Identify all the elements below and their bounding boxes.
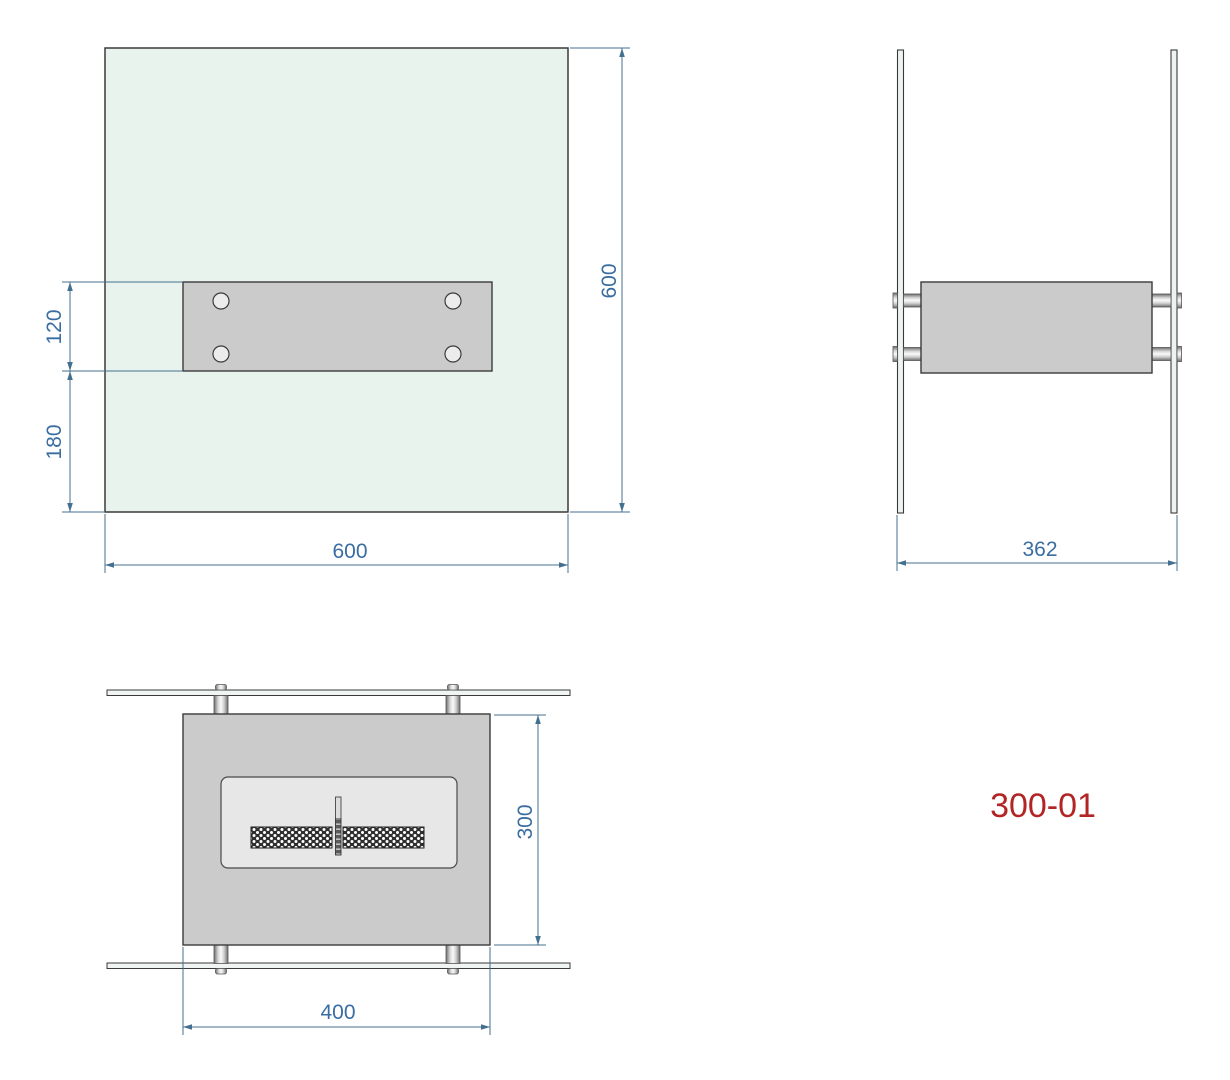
glass-panel-side-right (1171, 50, 1177, 513)
front-view: 600 600 120 180 (43, 48, 630, 573)
standoff-cylinder (446, 696, 460, 715)
regulator-rod-lower (336, 819, 342, 855)
top-view: 300 400 (107, 685, 570, 1036)
dim-side-depth: 362 (897, 515, 1177, 571)
dim-bracket-height-label: 120 (43, 309, 66, 344)
standoff-cylinder (904, 348, 923, 361)
dim-side-depth-label: 362 (1022, 538, 1057, 561)
standoff-cylinder (1151, 294, 1171, 307)
glass-edge-strip-bottom (107, 963, 570, 969)
part-number-label: 300-01 (990, 787, 1096, 825)
burner-mesh-right (343, 827, 424, 848)
dim-top-width: 400 (183, 947, 490, 1035)
glass-panel-front (105, 48, 568, 512)
dim-top-depth: 300 (494, 715, 546, 945)
dim-front-width: 600 (105, 514, 568, 573)
standoff-cap (448, 685, 459, 691)
regulator-rod-handle (336, 797, 342, 819)
mounting-hole (445, 346, 461, 362)
glass-panel-side-left (898, 50, 904, 513)
standoff-cylinder (1151, 348, 1171, 361)
dim-front-height: 600 (570, 48, 630, 512)
burner-box-side (921, 282, 1152, 373)
standoff-cylinder (214, 945, 228, 964)
mounting-hole (213, 293, 229, 309)
standoff-cylinder (446, 945, 460, 964)
standoff-cap (893, 347, 898, 362)
side-view: 362 (893, 50, 1182, 571)
standoff-cylinder (214, 696, 228, 715)
standoff-cap (216, 969, 227, 975)
standoff-cylinder (904, 294, 923, 307)
mounting-hole (445, 293, 461, 309)
standoff-cap (448, 969, 459, 975)
technical-drawing: 600 600 120 180 (0, 0, 1230, 1080)
standoff-cap (1177, 293, 1182, 308)
dim-front-width-label: 600 (332, 540, 367, 563)
dim-top-depth-label: 300 (514, 804, 537, 839)
glass-edge-strip-top (107, 690, 570, 696)
dim-top-width-label: 400 (320, 1001, 355, 1024)
dim-front-height-label: 600 (598, 263, 621, 298)
burner-mesh-left (251, 827, 332, 848)
standoff-cap (893, 293, 898, 308)
standoff-cap (216, 685, 227, 691)
standoff-cap (1177, 347, 1182, 362)
mounting-hole (213, 346, 229, 362)
dim-bracket-offset-label: 180 (43, 424, 66, 459)
